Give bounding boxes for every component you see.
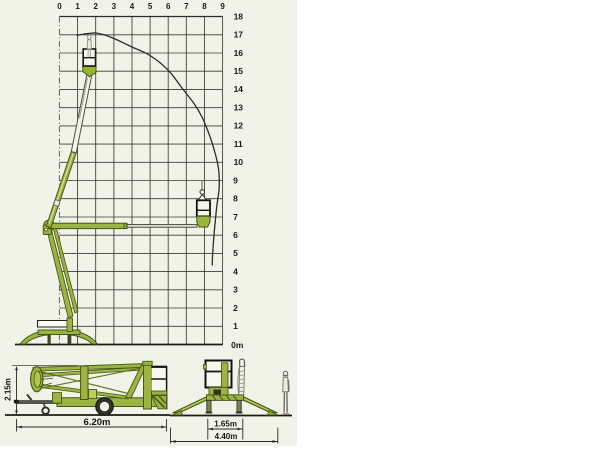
svg-text:2: 2: [233, 303, 238, 313]
svg-text:4: 4: [130, 2, 135, 11]
svg-text:17: 17: [234, 30, 244, 40]
svg-text:8: 8: [233, 194, 238, 204]
svg-text:1: 1: [233, 321, 238, 331]
svg-text:3: 3: [233, 285, 238, 295]
svg-text:0m: 0m: [231, 340, 244, 350]
svg-text:11: 11: [234, 139, 243, 149]
svg-text:10: 10: [234, 157, 244, 167]
svg-text:3: 3: [112, 2, 117, 11]
svg-text:5: 5: [148, 2, 153, 11]
svg-text:5: 5: [233, 248, 238, 258]
svg-text:7: 7: [233, 212, 238, 222]
svg-text:6: 6: [166, 2, 171, 11]
svg-text:16: 16: [234, 48, 244, 58]
svg-text:9: 9: [220, 2, 225, 11]
svg-text:6: 6: [233, 230, 238, 240]
svg-text:6.20m: 6.20m: [84, 417, 111, 428]
svg-text:1.65m: 1.65m: [214, 420, 237, 429]
svg-text:2: 2: [93, 2, 98, 11]
svg-text:2.15m: 2.15m: [4, 378, 13, 401]
svg-text:18: 18: [234, 11, 244, 21]
svg-text:9: 9: [233, 175, 238, 185]
svg-text:1: 1: [75, 2, 80, 11]
svg-text:7: 7: [184, 2, 189, 11]
svg-text:4: 4: [233, 266, 238, 276]
svg-text:12: 12: [234, 121, 244, 131]
svg-text:14: 14: [234, 84, 244, 94]
svg-text:13: 13: [234, 103, 244, 113]
svg-text:15: 15: [234, 66, 244, 76]
svg-text:8: 8: [202, 2, 207, 11]
svg-text:4.40m: 4.40m: [215, 432, 238, 441]
svg-text:0: 0: [57, 2, 62, 11]
